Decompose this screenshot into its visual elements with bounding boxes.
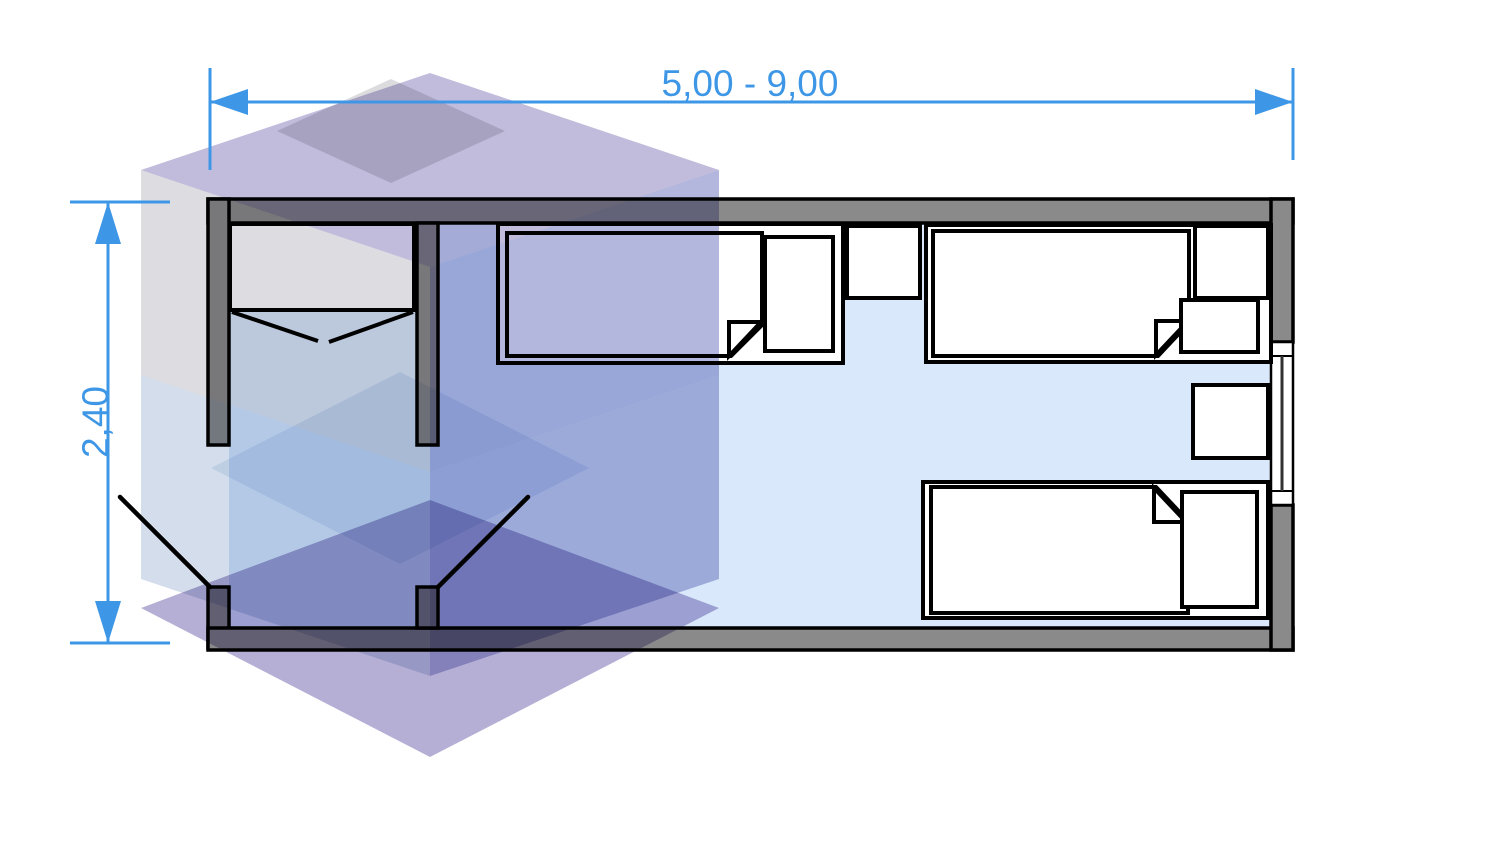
height-dimension-label: 2,40	[75, 386, 116, 458]
right-wall-lower	[1271, 505, 1293, 650]
nightstand-top	[847, 226, 920, 298]
bed-pillow	[1182, 492, 1257, 607]
cube-logo-watermark	[141, 73, 719, 757]
nightstand-window	[1193, 385, 1268, 458]
bed-pillow	[1195, 226, 1268, 298]
bed-bottom-right	[923, 482, 1268, 618]
arrow-right-icon	[1255, 89, 1293, 115]
bed-mattress	[931, 487, 1188, 613]
arrow-left-icon	[210, 89, 248, 115]
arrow-up-icon	[95, 202, 121, 244]
bed-pillow	[765, 237, 833, 351]
arrow-down-icon	[95, 601, 121, 643]
right-wall-upper	[1271, 199, 1293, 342]
floor-plan-canvas: 5,00 - 9,00 2,40	[0, 0, 1500, 844]
window	[1271, 342, 1293, 505]
floor-plan-drawing: 5,00 - 9,00 2,40	[0, 0, 1500, 844]
bed-top-right	[926, 225, 1271, 362]
bed-blanket	[1181, 300, 1258, 352]
width-dimension-label: 5,00 - 9,00	[662, 63, 839, 104]
bed-mattress	[933, 231, 1189, 356]
